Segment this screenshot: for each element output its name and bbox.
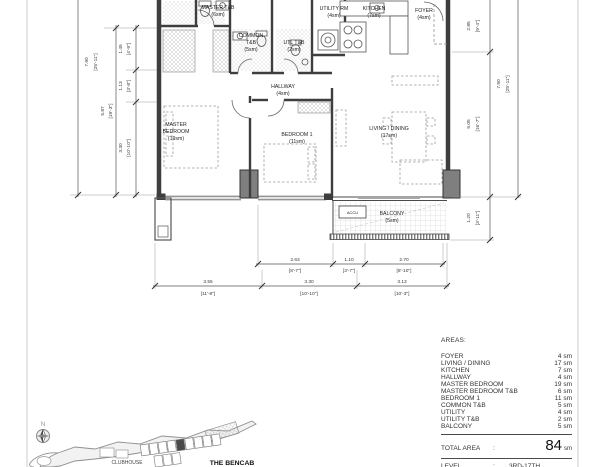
- svg-text:BEDROOM: BEDROOM: [163, 129, 190, 135]
- site-plan: N CLUBHOUSE THE BE: [30, 421, 256, 467]
- svg-text:[9'-4"]: [9'-4"]: [475, 20, 481, 32]
- svg-text:[19'-3"]: [19'-3"]: [108, 104, 114, 119]
- dim-left-mid-m: 5.87: [100, 106, 106, 116]
- svg-text:(5sm): (5sm): [244, 47, 258, 53]
- table-row: MASTER BEDROOM19 sm: [441, 381, 572, 388]
- svg-text:[10'-3"]: [10'-3"]: [395, 291, 410, 297]
- room-label-common-tb: COMMON: [239, 33, 263, 39]
- svg-text:[8'-7"]: [8'-7"]: [289, 268, 301, 274]
- svg-text:1.10: 1.10: [344, 257, 354, 263]
- svg-text:2.63: 2.63: [290, 257, 300, 263]
- table-row: LIVING / DINING17 sm: [441, 360, 572, 367]
- sofa: [400, 160, 442, 184]
- table-row: BALCONY5 sm: [441, 423, 572, 430]
- svg-text:T&B: T&B: [246, 40, 257, 46]
- svg-text:(4sm): (4sm): [276, 91, 290, 97]
- total-area-value: 84: [545, 439, 562, 452]
- svg-text:(6sm): (6sm): [211, 12, 225, 18]
- svg-text:[4'-9"]: [4'-9"]: [126, 43, 132, 55]
- balcony-railing: [330, 234, 449, 240]
- dim-left-outer-m: 7.90: [84, 57, 90, 67]
- svg-text:[10'-10"]: [10'-10"]: [300, 291, 318, 297]
- console: [336, 110, 346, 146]
- svg-text:3.55: 3.55: [203, 279, 213, 285]
- dim-right-outer-m: 7.90: [496, 79, 502, 89]
- foyer-boundary: [434, 4, 447, 44]
- svg-text:3.30: 3.30: [304, 279, 314, 285]
- clubhouse-label: CLUBHOUSE: [111, 460, 143, 466]
- stove: [340, 22, 366, 52]
- room-label-master-tb: MASTER T&B: [201, 5, 235, 11]
- svg-text:1.20: 1.20: [466, 213, 472, 223]
- svg-text:(7sm): (7sm): [367, 13, 381, 19]
- svg-text:(4sm): (4sm): [327, 13, 341, 19]
- total-area-row: TOTAL AREA : 84 sm: [441, 435, 572, 454]
- svg-text:3.13: 3.13: [397, 279, 407, 285]
- level-row: LEVEL : 3RD-17TH: [441, 459, 572, 467]
- room-label-kitchen: KITCHEN: [363, 6, 386, 12]
- svg-text:1.13: 1.13: [118, 81, 124, 91]
- table-row: BEDROOM 111 sm: [441, 395, 572, 402]
- room-label-foyer: FOYER: [415, 8, 433, 14]
- svg-text:3.30: 3.30: [118, 143, 124, 153]
- svg-text:2.70: 2.70: [399, 257, 409, 263]
- table-row: UTILITY4 sm: [441, 409, 572, 416]
- room-label-living-dining: LIVING / DINING: [369, 126, 409, 132]
- north-label: N: [41, 421, 46, 428]
- accu-label: ACCU: [347, 210, 358, 215]
- room-label-utility-rm: UTILITY RM: [320, 6, 349, 12]
- svg-text:5.05: 5.05: [466, 119, 472, 129]
- room-label-balcony: BALCONY: [380, 211, 405, 217]
- room-label-bedroom1: BEDROOM 1: [281, 132, 312, 138]
- svg-text:[3'-7"]: [3'-7"]: [343, 268, 355, 274]
- svg-text:[3'-11"]: [3'-11"]: [475, 211, 481, 226]
- svg-text:[3'-8"]: [3'-8"]: [126, 80, 132, 92]
- svg-text:[16'-7"]: [16'-7"]: [475, 117, 481, 132]
- drawing-sheet: ACCU: [0, 0, 602, 467]
- svg-text:[11'-8"]: [11'-8"]: [201, 291, 216, 297]
- svg-text:[25'-11"]: [25'-11"]: [505, 75, 511, 92]
- svg-text:1.45: 1.45: [118, 44, 124, 54]
- building-name-label: THE BENCAB: [210, 460, 255, 467]
- svg-text:[25'-11"]: [25'-11"]: [93, 53, 99, 70]
- svg-text:2.85: 2.85: [466, 21, 472, 31]
- svg-text:(4sm): (4sm): [417, 15, 431, 21]
- room-label-hallway: HALLWAY: [271, 84, 295, 90]
- room-label-master-bedroom: MASTER: [165, 122, 187, 128]
- table-row: KITCHEN7 sm: [441, 367, 572, 374]
- table-row: COMMON T&B5 sm: [441, 402, 572, 409]
- svg-text:(11sm): (11sm): [289, 139, 305, 145]
- dining-table: [392, 112, 426, 162]
- svg-text:[8'-10"]: [8'-10"]: [397, 268, 412, 274]
- svg-text:(2sm): (2sm): [287, 47, 301, 53]
- table-row: HALLWAY4 sm: [441, 374, 572, 381]
- svg-text:(5sm): (5sm): [385, 218, 399, 224]
- table-row: MASTER BEDROOM T&B6 sm: [441, 388, 572, 395]
- areas-panel: AREAS: FOYER4 sm LIVING / DINING17 sm KI…: [441, 337, 572, 467]
- areas-title: AREAS:: [441, 337, 572, 344]
- svg-text:(19sm): (19sm): [168, 136, 184, 142]
- svg-text:(17sm): (17sm): [381, 133, 397, 139]
- table-row: FOYER4 sm: [441, 353, 572, 360]
- room-label-utl-tb: UTL T&B: [283, 40, 305, 46]
- fin-wall: [155, 198, 171, 240]
- north-arrow-icon: [37, 430, 50, 443]
- level-value: 3RD-17TH: [509, 463, 540, 467]
- svg-text:[10'-10"]: [10'-10"]: [126, 139, 132, 157]
- table-row: UTILITY T&B2 sm: [441, 416, 572, 423]
- unit-location-marker: [176, 439, 185, 451]
